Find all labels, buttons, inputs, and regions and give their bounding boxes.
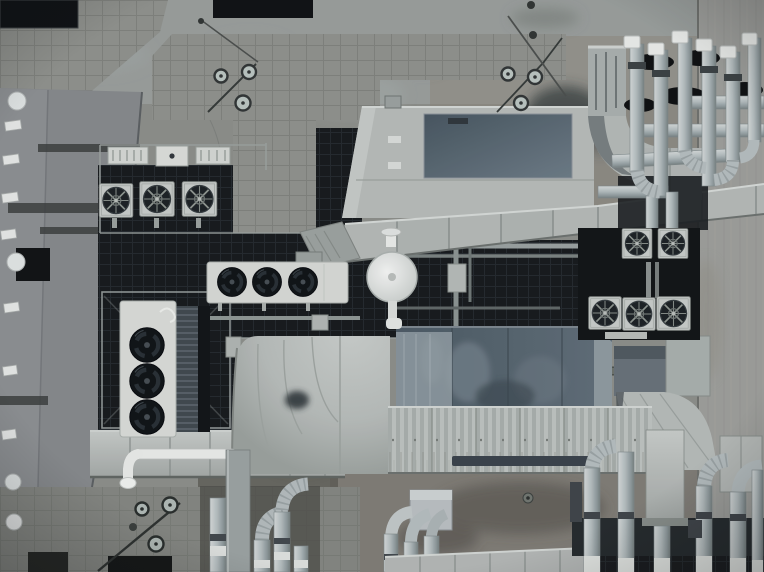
- rooftop-photo-canvas: [0, 0, 764, 572]
- vignette: [0, 0, 764, 572]
- rooftop-aerial-photo: [0, 0, 764, 572]
